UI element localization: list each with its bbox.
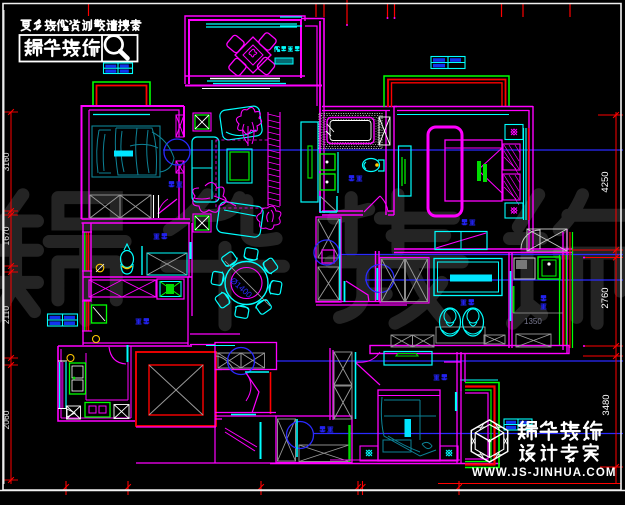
svg-text:WWW.JS-JINHUA.COM: WWW.JS-JINHUA.COM — [472, 467, 617, 479]
svg-text:1350: 1350 — [524, 317, 542, 326]
svg-text:2760: 2760 — [600, 287, 611, 308]
svg-text:3480: 3480 — [601, 394, 612, 415]
svg-text:4250: 4250 — [600, 171, 611, 192]
